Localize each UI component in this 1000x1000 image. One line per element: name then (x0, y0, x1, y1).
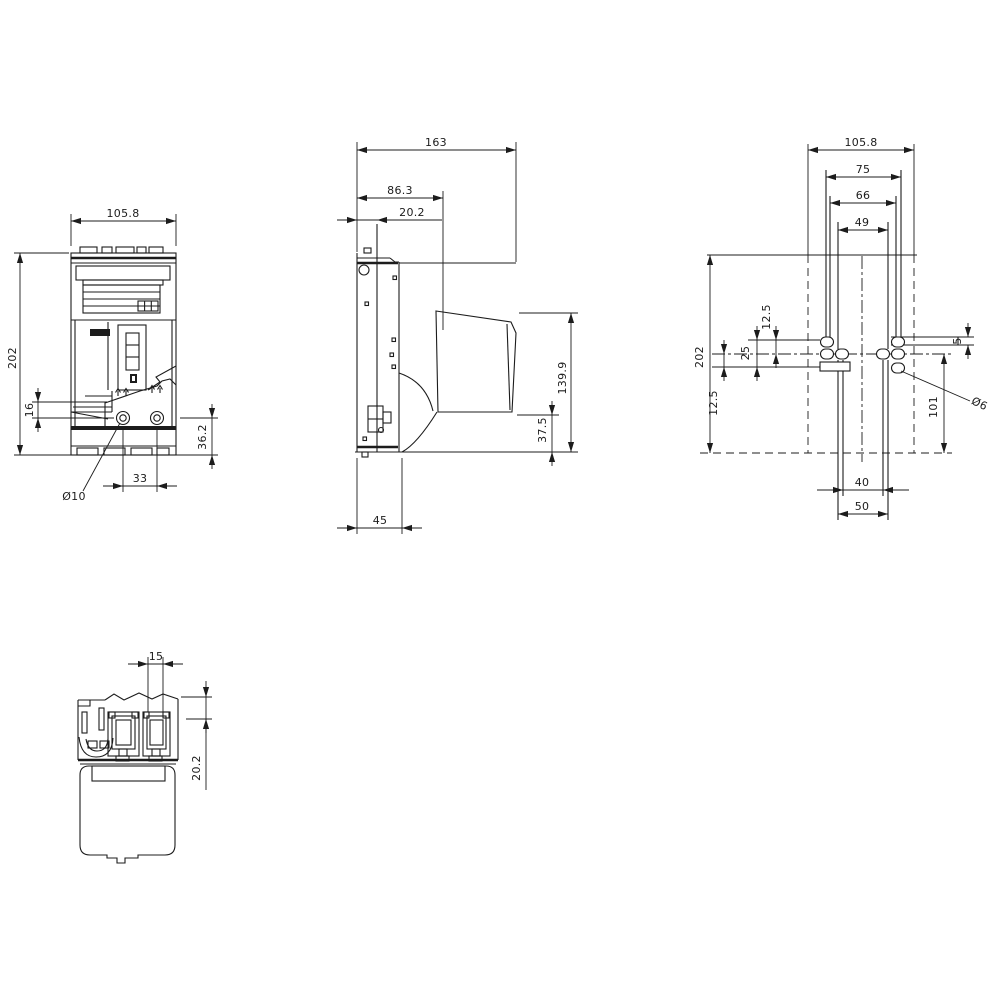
dim-drill-span-75: 75 (856, 163, 871, 176)
dim-front-hole-to-bottom: 36.2 (196, 424, 209, 450)
clamp-plate (820, 362, 850, 371)
dim-side-recess-depth: 20.2 (399, 206, 425, 219)
dim-side-base-depth: 45 (373, 514, 388, 527)
dim-side-depth: 163 (425, 136, 447, 149)
dim-front-height: 202 (6, 347, 19, 369)
dim-side-base-height: 37.5 (536, 417, 549, 443)
dim-front-width: 105.8 (107, 207, 140, 220)
front-nameplate (90, 329, 110, 336)
dim-drill-hole-pitch: 25 (739, 346, 752, 361)
dim-drill-slot-outer: 50 (855, 500, 870, 513)
dim-bottom-recess-depth: 20.2 (190, 755, 203, 781)
dimension-drawing: 105.8 202 16 36.2 33 Ø10 (0, 0, 1000, 1000)
dim-drill-offset-top: 12.5 (760, 304, 773, 330)
dim-drill-bar-thickness: 5 (951, 337, 964, 344)
dim-bottom-slot-width: 15 (149, 650, 164, 663)
dim-drill-offset-bottom: 12.5 (707, 390, 720, 416)
dim-drill-span-66: 66 (856, 189, 871, 202)
drawing-canvas: 105.8 202 16 36.2 33 Ø10 (0, 0, 1000, 1000)
dim-drill-slot-inner: 40 (855, 476, 870, 489)
dim-front-hole-diameter: Ø10 (62, 490, 86, 503)
dim-drill-center-to-bottom: 101 (927, 396, 940, 418)
dim-side-handle-height: 139.9 (556, 362, 569, 395)
dim-side-cover-depth: 86.3 (387, 184, 413, 197)
dim-front-lug-to-hole: 16 (23, 403, 36, 418)
dim-front-hole-spacing: 33 (133, 472, 148, 485)
dim-drill-span-49: 49 (855, 216, 870, 229)
dim-drill-width: 105.8 (845, 136, 878, 149)
dim-drill-height: 202 (693, 346, 706, 368)
